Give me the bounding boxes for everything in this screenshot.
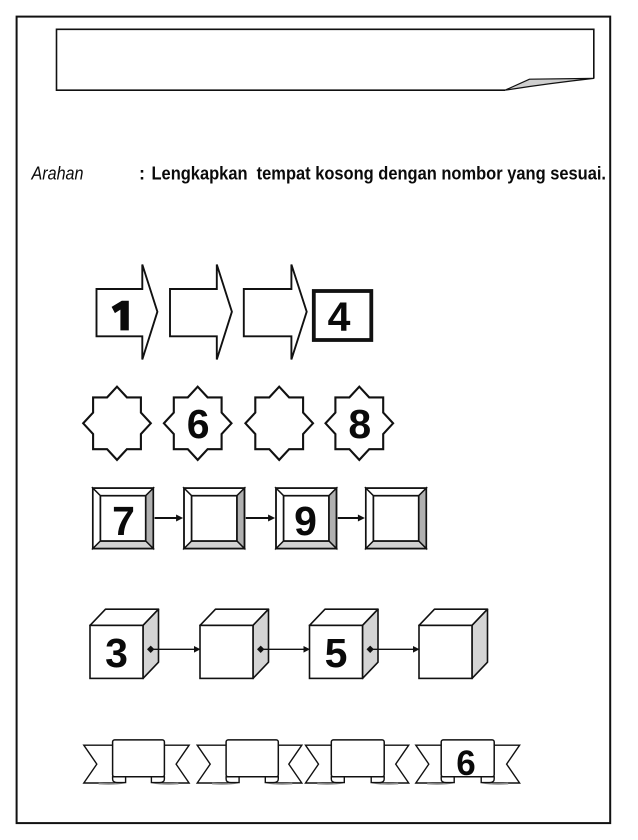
svg-text:Arahan: Arahan <box>31 164 84 184</box>
svg-text:9: 9 <box>294 498 317 544</box>
svg-text:8: 8 <box>348 401 371 447</box>
svg-text:3: 3 <box>105 630 128 676</box>
svg-text:5: 5 <box>325 630 348 676</box>
svg-text:7: 7 <box>112 498 135 544</box>
svg-text:6: 6 <box>456 744 475 783</box>
svg-text::: : <box>139 164 145 184</box>
svg-text:4: 4 <box>328 294 351 340</box>
svg-text:6: 6 <box>187 401 210 447</box>
svg-text:Lengkapkan tempat kosong deng: Lengkapkan tempat kosong dengan nombor y… <box>152 164 607 184</box>
